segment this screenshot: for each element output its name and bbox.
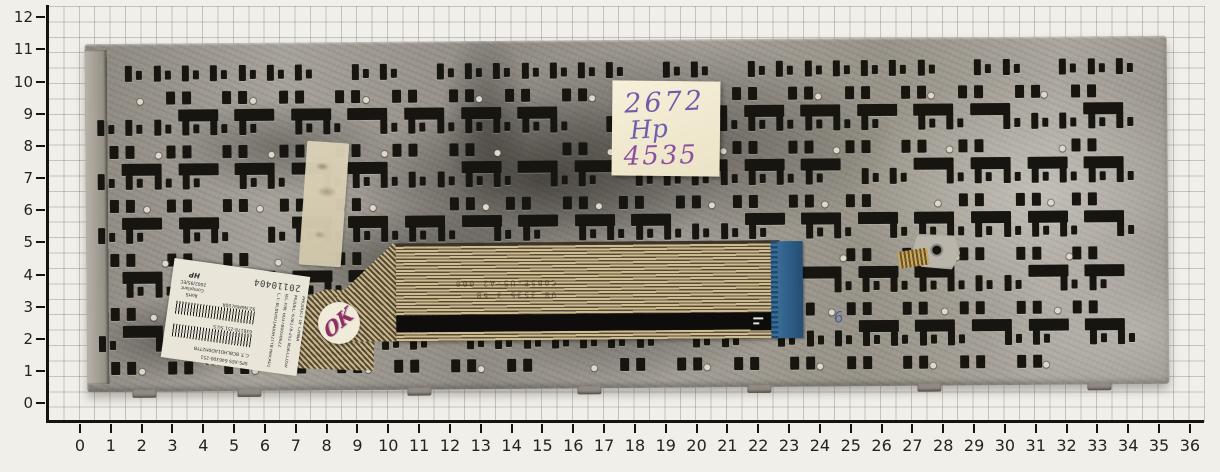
cutout bbox=[760, 228, 766, 237]
cutout bbox=[99, 336, 106, 352]
plate-left-flange bbox=[85, 50, 110, 384]
cutout bbox=[408, 90, 417, 103]
cutout bbox=[692, 223, 699, 239]
cutout bbox=[182, 65, 189, 81]
ruler-number-x: 9 bbox=[352, 436, 362, 455]
plate-tab bbox=[1087, 382, 1111, 390]
sticky-note: 2672 Hp 4535 bbox=[612, 80, 721, 176]
cutout bbox=[138, 287, 144, 296]
cutout bbox=[1088, 138, 1097, 151]
ruler-number-x: 6 bbox=[260, 436, 270, 455]
rivet bbox=[1059, 146, 1065, 152]
cutout bbox=[420, 123, 426, 132]
ruler-number-x: 2 bbox=[137, 436, 147, 455]
cutout bbox=[903, 302, 912, 315]
cutout bbox=[295, 91, 304, 104]
ruler-number-x: 35 bbox=[1149, 436, 1169, 455]
ruler-number-x: 15 bbox=[532, 436, 552, 455]
cutout bbox=[958, 85, 967, 98]
cutout bbox=[931, 335, 937, 344]
ruler-tick-y bbox=[36, 209, 45, 211]
cutout bbox=[221, 70, 227, 79]
ruler-number-x: 18 bbox=[625, 436, 645, 455]
cutout bbox=[381, 172, 388, 188]
cutout bbox=[563, 196, 572, 209]
cutout bbox=[380, 64, 387, 80]
cutout bbox=[1089, 300, 1098, 313]
blue-connector-end bbox=[776, 241, 804, 338]
ruler-number-y: 5 bbox=[5, 233, 33, 251]
rohs-block: RoHS Compliant 2002/95/EC HP bbox=[171, 267, 216, 299]
ruler-tick-y bbox=[36, 370, 45, 372]
cutout bbox=[493, 117, 500, 133]
cutout bbox=[1071, 171, 1077, 180]
cutout bbox=[974, 85, 983, 98]
cutout bbox=[835, 330, 842, 346]
cutout bbox=[477, 176, 483, 185]
ruler-number-x: 29 bbox=[964, 436, 984, 455]
ruler-number-x: 11 bbox=[409, 436, 429, 455]
cutout bbox=[335, 90, 344, 103]
cutout bbox=[1042, 118, 1048, 127]
cutout bbox=[1117, 220, 1124, 236]
cutout bbox=[550, 63, 557, 79]
cutout bbox=[1100, 279, 1106, 288]
cutout bbox=[363, 177, 369, 186]
ruler-tick-x bbox=[1127, 424, 1129, 433]
cutout bbox=[522, 197, 531, 210]
cutout bbox=[1089, 274, 1096, 290]
cutout bbox=[929, 65, 935, 74]
cutout bbox=[844, 65, 850, 74]
cutout bbox=[787, 120, 793, 129]
cutout bbox=[408, 144, 417, 157]
cutout bbox=[1031, 193, 1040, 206]
cutout bbox=[929, 119, 935, 128]
cutout bbox=[1071, 84, 1080, 97]
cutout bbox=[959, 247, 968, 260]
cutout bbox=[845, 227, 851, 236]
cutout bbox=[833, 60, 840, 76]
cutout bbox=[324, 118, 331, 134]
ruler-tick-y bbox=[36, 274, 45, 276]
cutout bbox=[352, 64, 359, 80]
cutout bbox=[136, 71, 142, 80]
cutout bbox=[351, 90, 360, 103]
cutout bbox=[127, 282, 134, 298]
rivet bbox=[250, 98, 256, 104]
cutout bbox=[137, 125, 143, 134]
plate-tab bbox=[577, 386, 601, 394]
cutout bbox=[561, 121, 567, 130]
cutout bbox=[449, 230, 455, 239]
rivet bbox=[840, 255, 846, 261]
cutout bbox=[127, 362, 136, 375]
ruler-number-x: 1 bbox=[106, 436, 116, 455]
cutout bbox=[523, 359, 532, 372]
cutout bbox=[1032, 247, 1041, 260]
cutout bbox=[874, 335, 880, 344]
cutout bbox=[748, 141, 757, 154]
ruler-tick-x bbox=[110, 424, 112, 433]
cutout bbox=[126, 174, 133, 190]
ruler-tick-x bbox=[696, 424, 698, 433]
cutout bbox=[409, 226, 416, 242]
cutout bbox=[465, 117, 472, 133]
cutout bbox=[1072, 246, 1081, 259]
cutout bbox=[109, 146, 118, 159]
cutout bbox=[194, 232, 200, 241]
ruler-number-x: 17 bbox=[594, 436, 614, 455]
ruler-number-x: 24 bbox=[810, 436, 830, 455]
plate-tab bbox=[917, 384, 941, 392]
cutout bbox=[720, 115, 727, 131]
rivet bbox=[144, 207, 150, 213]
cutout bbox=[166, 92, 175, 105]
cutout bbox=[223, 145, 232, 158]
cutout bbox=[805, 195, 814, 208]
cutout bbox=[607, 224, 614, 240]
cutout bbox=[98, 228, 105, 244]
cutout bbox=[1100, 333, 1106, 342]
cutout bbox=[862, 248, 871, 261]
cutout bbox=[833, 114, 840, 130]
cable-black-tag bbox=[750, 312, 772, 330]
ruler-number-x: 19 bbox=[656, 436, 676, 455]
cutout bbox=[862, 194, 871, 207]
cutout bbox=[98, 174, 105, 190]
rivet bbox=[1048, 200, 1054, 206]
cutout bbox=[1003, 167, 1010, 183]
cutout bbox=[959, 334, 965, 343]
cutout bbox=[862, 302, 871, 315]
rivet bbox=[709, 202, 715, 208]
cutout bbox=[437, 117, 444, 133]
rivet bbox=[596, 203, 602, 209]
cutout bbox=[238, 91, 247, 104]
cutout bbox=[155, 282, 162, 298]
cutout bbox=[279, 91, 288, 104]
ruler-number-x: 13 bbox=[471, 436, 491, 455]
cutout bbox=[1099, 171, 1105, 180]
cutout bbox=[1087, 84, 1096, 97]
cutout bbox=[862, 168, 869, 184]
rivet bbox=[363, 97, 369, 103]
rivet bbox=[946, 146, 952, 152]
ruler-number-x: 3 bbox=[167, 436, 177, 455]
ruler-tick-x bbox=[1189, 424, 1191, 433]
cutout bbox=[1088, 166, 1095, 182]
cutout bbox=[561, 67, 567, 76]
cutout bbox=[891, 330, 898, 346]
rivet bbox=[930, 363, 936, 369]
cutout bbox=[579, 224, 586, 240]
cutout bbox=[919, 276, 926, 292]
ruler-number-x: 28 bbox=[933, 436, 953, 455]
cutout bbox=[1002, 59, 1009, 75]
cutout bbox=[1013, 64, 1019, 73]
ruler-number-y: 7 bbox=[5, 169, 33, 187]
rivet bbox=[494, 150, 500, 156]
cutout bbox=[466, 171, 473, 187]
ruler-tick-x bbox=[1096, 424, 1098, 433]
cutout bbox=[960, 355, 969, 368]
ruler-number-x: 31 bbox=[1026, 436, 1046, 455]
cutout bbox=[846, 194, 855, 207]
cutout bbox=[364, 231, 370, 240]
ruler-tick-y bbox=[36, 177, 45, 179]
cutout bbox=[790, 357, 799, 370]
cutout bbox=[918, 140, 927, 153]
cutout bbox=[918, 114, 925, 130]
cutout bbox=[872, 65, 878, 74]
cutout bbox=[789, 195, 798, 208]
cutout bbox=[817, 227, 823, 236]
ribbon-flex-cable: 98 3535-3 5B C0B5E-U5-A2 000 bbox=[336, 240, 805, 342]
cutout bbox=[166, 146, 175, 159]
cutout bbox=[391, 123, 397, 132]
cutout bbox=[606, 62, 613, 78]
cutout bbox=[183, 227, 190, 243]
ruler-number-x: 5 bbox=[229, 436, 239, 455]
note-line-model: 4535 bbox=[623, 142, 698, 170]
cutout bbox=[153, 66, 160, 82]
cutout bbox=[788, 174, 794, 183]
ruler-number-x: 21 bbox=[717, 436, 737, 455]
cutout bbox=[504, 68, 510, 77]
cutout bbox=[380, 118, 387, 134]
cutout bbox=[221, 124, 227, 133]
cutout bbox=[451, 359, 460, 372]
cutout bbox=[1014, 172, 1020, 181]
cutout bbox=[663, 62, 670, 78]
cutout bbox=[306, 69, 312, 78]
cutout bbox=[392, 144, 401, 157]
cutout bbox=[522, 117, 529, 133]
rivet bbox=[483, 204, 489, 210]
ruler-tick-x bbox=[141, 424, 143, 433]
cutout bbox=[590, 175, 596, 184]
cutout bbox=[732, 228, 738, 237]
rivet bbox=[370, 205, 376, 211]
cutout bbox=[986, 172, 992, 181]
cutout bbox=[1060, 221, 1067, 237]
cutout bbox=[250, 178, 256, 187]
cutout bbox=[1017, 355, 1026, 368]
cutout bbox=[507, 359, 516, 372]
cutout bbox=[193, 70, 199, 79]
cutout bbox=[391, 69, 397, 78]
cutout bbox=[505, 89, 514, 102]
cutout bbox=[166, 200, 175, 213]
cutout bbox=[676, 196, 685, 209]
cutout bbox=[805, 115, 812, 131]
cutout bbox=[636, 224, 643, 240]
cutout bbox=[1016, 247, 1025, 260]
cutout bbox=[1072, 138, 1081, 151]
cutout bbox=[392, 177, 398, 186]
cutout bbox=[902, 140, 911, 153]
rivet bbox=[1043, 362, 1049, 368]
cutout bbox=[721, 223, 728, 239]
ruler-tick-y bbox=[36, 48, 45, 50]
cutout bbox=[532, 68, 538, 77]
ruler-tick-x bbox=[326, 424, 328, 433]
cutout bbox=[1072, 192, 1081, 205]
ruler-number-y: 1 bbox=[5, 362, 33, 380]
rivet bbox=[942, 308, 948, 314]
cutout bbox=[1070, 117, 1076, 126]
plate-tab bbox=[407, 388, 431, 396]
ruler-number-y: 12 bbox=[5, 8, 33, 26]
cutout bbox=[987, 280, 993, 289]
cutout bbox=[846, 335, 852, 344]
cutout bbox=[110, 200, 119, 213]
cutout bbox=[394, 360, 403, 373]
cutout bbox=[279, 232, 285, 241]
cutout bbox=[1127, 171, 1133, 180]
cutout bbox=[533, 122, 539, 131]
cutout bbox=[494, 225, 501, 241]
cutout bbox=[1127, 63, 1133, 72]
cutout bbox=[437, 171, 444, 187]
rivet bbox=[137, 99, 143, 105]
cutout bbox=[621, 358, 630, 371]
cutout bbox=[902, 335, 908, 344]
cutout bbox=[1087, 58, 1094, 74]
cutout bbox=[449, 197, 458, 210]
cutout bbox=[448, 176, 454, 185]
ruler-number-x: 26 bbox=[871, 436, 891, 455]
cutout bbox=[901, 173, 907, 182]
ruler-number-x: 25 bbox=[841, 436, 861, 455]
cutout bbox=[210, 65, 217, 81]
cutout bbox=[845, 86, 854, 99]
cutout bbox=[975, 247, 984, 260]
cutout bbox=[97, 120, 104, 136]
cutout bbox=[1004, 275, 1011, 291]
cutout bbox=[635, 196, 644, 209]
plate-tab bbox=[132, 390, 156, 398]
ruler-tick-x bbox=[233, 424, 235, 433]
ruler-number-x: 0 bbox=[75, 436, 85, 455]
ruler-tick-y bbox=[36, 306, 45, 308]
cutout bbox=[449, 89, 458, 102]
cutout bbox=[958, 172, 964, 181]
ruler-number-x: 8 bbox=[322, 436, 332, 455]
ruler-tick-y bbox=[36, 145, 45, 147]
cutout bbox=[863, 330, 870, 346]
cutout bbox=[890, 168, 897, 184]
rivet bbox=[269, 152, 275, 158]
rivet bbox=[704, 364, 710, 370]
cutout bbox=[817, 335, 823, 344]
ruler-tick-x bbox=[726, 424, 728, 433]
cutout bbox=[890, 222, 897, 238]
cutout bbox=[126, 200, 135, 213]
cutout bbox=[1015, 226, 1021, 235]
cutout bbox=[222, 91, 231, 104]
note-line-brand: Hp bbox=[629, 116, 668, 143]
cutout bbox=[1116, 166, 1123, 182]
cutout bbox=[748, 61, 755, 77]
cutout bbox=[110, 341, 116, 350]
cutout bbox=[125, 146, 134, 159]
cutout bbox=[183, 173, 190, 189]
cutout bbox=[278, 70, 284, 79]
ruler-tick-x bbox=[264, 424, 266, 433]
cutout bbox=[306, 123, 312, 132]
cutout bbox=[900, 65, 906, 74]
ruler-tick-x bbox=[665, 424, 667, 433]
photo-keyboard-on-grid-paper: 0123456789101112131415161718192021222324… bbox=[0, 0, 1220, 472]
cutout bbox=[732, 141, 741, 154]
cutout bbox=[930, 281, 936, 290]
cutout bbox=[1129, 333, 1135, 342]
cutout bbox=[295, 119, 302, 135]
ruler-number-y: 0 bbox=[5, 394, 33, 412]
cutout bbox=[749, 169, 756, 185]
cutout bbox=[352, 144, 361, 157]
cutout bbox=[760, 174, 766, 183]
ruler-number-y: 8 bbox=[5, 137, 33, 155]
cutout bbox=[154, 174, 161, 190]
ruler-tick-x bbox=[418, 424, 420, 433]
cutout bbox=[976, 301, 985, 314]
ruler-axis-vertical bbox=[46, 5, 49, 423]
ruler-tick-x bbox=[603, 424, 605, 433]
cutout bbox=[975, 167, 982, 183]
cutout bbox=[1088, 112, 1095, 128]
cutout bbox=[109, 179, 115, 188]
rivet bbox=[720, 148, 726, 154]
cutout bbox=[1089, 328, 1096, 344]
cutout bbox=[127, 308, 136, 321]
cutout bbox=[873, 173, 879, 182]
cutout bbox=[295, 65, 302, 81]
cutout bbox=[154, 120, 161, 136]
ruler-number-x: 20 bbox=[686, 436, 706, 455]
cutout bbox=[1072, 279, 1078, 288]
cutout bbox=[957, 118, 963, 127]
cutout bbox=[494, 171, 501, 187]
cutout bbox=[902, 281, 908, 290]
ruler-tick-y bbox=[36, 81, 45, 83]
cutout bbox=[279, 145, 288, 158]
cutout bbox=[974, 59, 981, 75]
cutout bbox=[550, 171, 557, 187]
ruler-tick-x bbox=[881, 424, 883, 433]
ruler-number-x: 16 bbox=[563, 436, 583, 455]
ruler-tick-x bbox=[973, 424, 975, 433]
ruler-tick-x bbox=[634, 424, 636, 433]
cutout bbox=[409, 172, 416, 188]
cutout bbox=[194, 178, 200, 187]
rivet bbox=[139, 369, 145, 375]
ruler-tick-x bbox=[171, 424, 173, 433]
rivet bbox=[1055, 308, 1061, 314]
ruler-number-y: 3 bbox=[5, 298, 33, 316]
cutout bbox=[1059, 59, 1066, 75]
cutout bbox=[126, 254, 135, 267]
cutout bbox=[295, 145, 304, 158]
rivet bbox=[815, 93, 821, 99]
cutout bbox=[110, 254, 119, 267]
cutout bbox=[182, 145, 191, 158]
ruler-tick-y bbox=[36, 16, 45, 18]
cutout bbox=[126, 228, 133, 244]
cutout bbox=[861, 140, 870, 153]
